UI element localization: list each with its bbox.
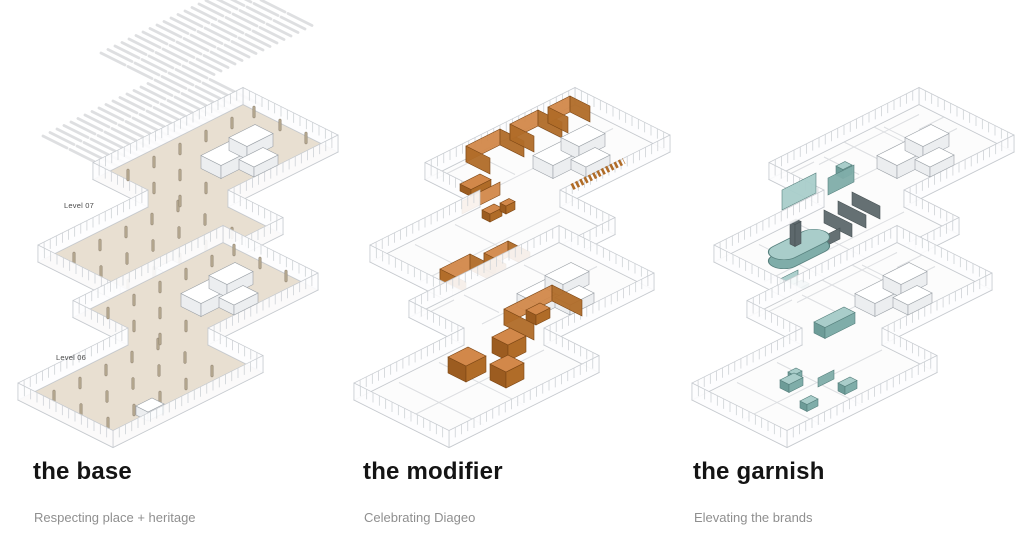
page-background: Level 07 Level 06 the base Respecting pl… <box>0 0 1024 536</box>
axonometric-drawing-garnish <box>682 0 1024 458</box>
diagram-subtitle-base: Respecting place + heritage <box>34 510 196 525</box>
axonometric-drawing-modifier <box>344 0 676 458</box>
axonometric-drawing-base <box>14 0 346 458</box>
diagram-subtitle-modifier: Celebrating Diageo <box>364 510 475 525</box>
diagram-title-garnish: the garnish <box>693 458 825 486</box>
diagram-the-garnish: the garnish Elevating the brands <box>682 0 1024 536</box>
diagram-the-modifier: the modifier Celebrating Diageo <box>341 0 682 536</box>
diagram-title-modifier: the modifier <box>363 458 503 486</box>
diagram-the-base: Level 07 Level 06 the base Respecting pl… <box>0 0 341 536</box>
level-label-lower: Level 06 <box>56 353 86 362</box>
level-label-upper: Level 07 <box>64 201 94 210</box>
diagram-subtitle-garnish: Elevating the brands <box>694 510 813 525</box>
diagram-title-base: the base <box>33 458 132 486</box>
